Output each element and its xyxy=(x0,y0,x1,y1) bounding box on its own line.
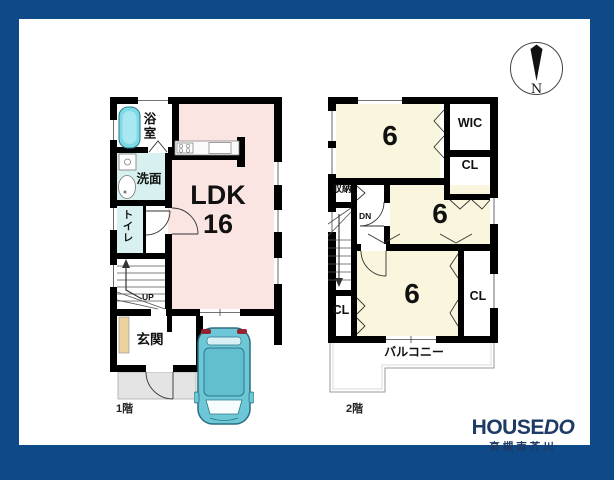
ldk-label: LDK xyxy=(173,182,263,209)
stairs-up-label: UP xyxy=(142,293,154,302)
storage-label: 収納 xyxy=(327,185,357,195)
floor2-tag: 2階 xyxy=(346,404,363,415)
branch-name: 高槻南芥川 xyxy=(463,439,583,454)
closet-right-label: CL xyxy=(464,290,492,303)
closet-top-label: CL xyxy=(448,159,492,172)
shoe-cabinet-icon xyxy=(119,317,129,353)
toilet-door-arc xyxy=(146,211,170,235)
washer-pan-icon xyxy=(119,154,136,170)
wic-label: WIC xyxy=(448,117,492,130)
closet-left-label: CL xyxy=(328,304,354,317)
bedroom1-size-label: 6 xyxy=(370,122,410,150)
brand-accent: DO xyxy=(544,416,575,439)
compass-icon: N xyxy=(508,40,566,98)
toilet-label: トイレ xyxy=(122,209,133,244)
floor1-tag: 1階 xyxy=(116,404,133,415)
housedo-logo: HOUSEDO 高槻南芥川 xyxy=(463,417,583,454)
bedroom2-size-label: 6 xyxy=(418,200,462,228)
stairs-down-label: DN xyxy=(359,212,371,221)
washroom-label: 洗面 xyxy=(130,173,168,186)
bedroom3-size-label: 6 xyxy=(390,280,434,308)
ldk-size-label: 16 xyxy=(173,211,263,238)
bathtub-icon xyxy=(119,107,140,148)
entrance-porch xyxy=(118,372,196,399)
plan-canvas: N xyxy=(19,19,590,445)
kitchen-counter-icon xyxy=(175,141,239,155)
brand-main: HOUSE xyxy=(472,416,544,439)
entrance-label: 玄関 xyxy=(130,333,170,347)
floor2-plan: 6 WIC CL 収納 DN 6 6 CL CL バルコニー xyxy=(324,94,502,406)
stairs-up-icon xyxy=(117,259,165,309)
car-icon xyxy=(194,322,254,428)
floorplan-page: N xyxy=(0,0,614,480)
bathroom-label: 浴室 xyxy=(142,112,155,141)
compass-north-label: N xyxy=(531,82,542,97)
sink-icon xyxy=(209,143,231,154)
balcony-label: バルコニー xyxy=(364,346,464,358)
